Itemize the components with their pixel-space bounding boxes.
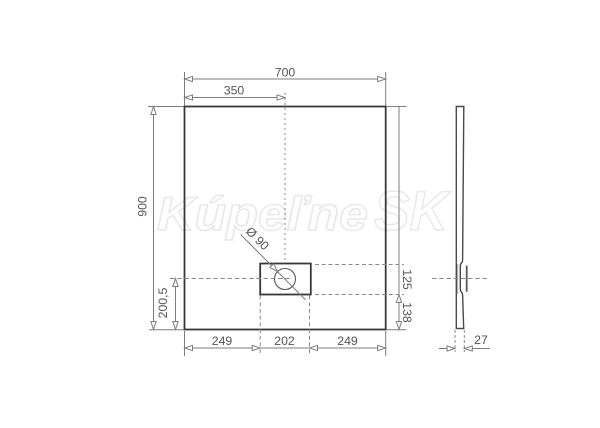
svg-text:200,5: 200,5: [156, 287, 170, 318]
svg-text:KúpeľneSK: KúpeľneSK: [157, 179, 451, 242]
svg-text:249: 249: [337, 334, 358, 348]
svg-text:700: 700: [275, 66, 296, 80]
svg-text:249: 249: [212, 334, 233, 348]
svg-text:27: 27: [474, 333, 488, 347]
svg-text:138: 138: [400, 302, 414, 323]
svg-text:900: 900: [136, 196, 150, 217]
svg-text:202: 202: [274, 334, 295, 348]
svg-text:350: 350: [224, 84, 245, 98]
svg-text:125: 125: [400, 269, 414, 290]
